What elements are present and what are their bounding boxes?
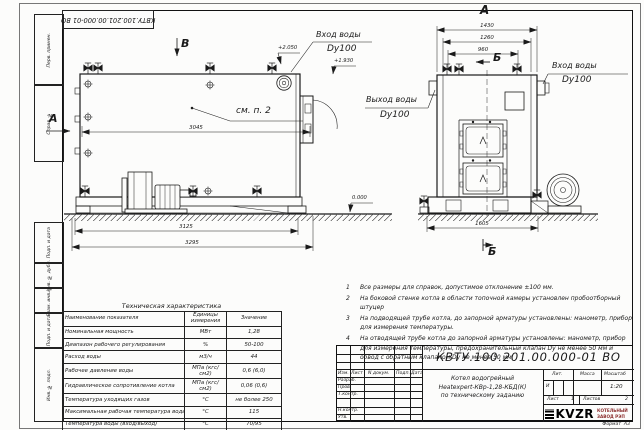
outlet-size: Dy100: [380, 110, 409, 120]
elevation-inlet: +2.050: [278, 45, 297, 51]
table-row: Температура воды (вход/выход)°С70/95: [63, 418, 282, 430]
note-text: На боковой стенке котла в области топочн…: [360, 294, 632, 313]
company-name-line2: ЗАВОД РЭП: [597, 414, 628, 419]
param-value: 115: [227, 406, 282, 418]
description-line2: Heatexpert-КВр-1,28-КБД(К): [422, 384, 543, 393]
view-marker-a: А: [49, 112, 58, 125]
tech-table-title: Техническая характеристика: [62, 302, 281, 310]
table-row: Температура уходящих газов°Сне более 250: [63, 394, 282, 406]
tech-col-units: Единицы измерения: [185, 312, 227, 327]
format-value: А3: [624, 422, 630, 427]
param-units: °С: [185, 394, 227, 406]
param-name: Рабочее давление воды: [63, 363, 185, 378]
company-name: КОТЕЛЬНЫЙ ЗАВОД РЭП: [597, 408, 628, 419]
param-value: 1,28: [227, 327, 282, 339]
param-units: МПа (кгс/см2): [185, 378, 227, 393]
view-marker-b: В: [181, 37, 189, 50]
param-name: Температура уходящих газов: [63, 394, 185, 406]
note-text: Все размеры для справок, допустимое откл…: [360, 283, 632, 293]
drawing-sheet: Перв. примен. Справ. № Подп. и дата Инв.…: [0, 0, 644, 430]
role-utv: Утв.: [338, 415, 348, 420]
elevation-nozzle: +1.930: [334, 58, 353, 64]
inlet-size-front: Dy100: [562, 75, 591, 85]
burner-door: [300, 96, 337, 143]
inlet-size-side: Dy100: [327, 44, 356, 54]
param-units: °С: [185, 406, 227, 418]
ground-hatch-front: [418, 214, 598, 221]
dim-960: 960: [478, 47, 488, 53]
table-row: Гидравлическое сопротивление котлаМПа (к…: [63, 378, 282, 393]
kvzr-logo-icon: [545, 409, 554, 419]
title-block: Изм. Лист N докум. Подп. Дата Разраб. Пр…: [336, 345, 633, 421]
table-row: Рабочее давление водыМПа (кгс/см2)0,6 (6…: [63, 363, 282, 378]
description-line1: Котел водогрейный: [422, 375, 543, 384]
param-value: 70/95: [227, 418, 282, 430]
param-units: МПа (кгс/см2): [185, 363, 227, 378]
lit-value: И: [546, 384, 549, 389]
section-label-top: Б: [493, 51, 501, 64]
ground-hatch-side: [64, 214, 392, 221]
tech-col-value: Значение: [227, 312, 282, 327]
doc-number: КВТУ.100.201.00.000-01 ВО: [423, 350, 634, 364]
scale-value: 1:20: [610, 384, 623, 390]
sheet-value: 1: [571, 397, 574, 402]
param-value: не более 250: [227, 394, 282, 406]
param-units: м3/ч: [185, 351, 227, 363]
note-number: 3: [340, 314, 360, 333]
note-number: 1: [340, 283, 360, 293]
company-logo: KVZR КОТЕЛЬНЫЙ ЗАВОД РЭП: [545, 406, 633, 421]
param-value: 50-100: [227, 339, 282, 351]
param-name: Номинальная мощность: [63, 327, 185, 339]
tech-col-name: Наименование показателя: [63, 312, 185, 327]
section-label-bottom: Б: [488, 245, 496, 258]
role-nkontr: Н.контр.: [338, 408, 359, 413]
scale-label: Масштаб: [604, 372, 626, 377]
tech-table-header-row: Наименование показателя Единицы измерени…: [63, 312, 282, 327]
rev-header-list: Лист: [351, 371, 363, 376]
role-razrab: Разраб.: [338, 378, 356, 383]
dim-1430: 1430: [480, 23, 494, 29]
mass-label: Масса: [580, 372, 595, 377]
param-name: Диапазон рабочего регулирования: [63, 339, 185, 351]
front-view-label: А: [480, 3, 489, 17]
description-line3: по техническому заданию: [422, 392, 543, 401]
sheets-value: 2: [625, 397, 628, 402]
param-name: Температура воды (вход/выход): [63, 418, 185, 430]
format-label: Формат А3: [570, 422, 630, 427]
table-row: Номинальная мощностьМВт1,28: [63, 327, 282, 339]
table-row: Расход водым3/ч44: [63, 351, 282, 363]
note-item: 1 Все размеры для справок, допустимое от…: [340, 283, 632, 293]
format-word: Формат: [602, 422, 621, 427]
param-units: °С: [185, 418, 227, 430]
note-item: 2 На боковой стенке котла в области топо…: [340, 294, 632, 313]
rev-header-ndokum: N докум.: [368, 371, 389, 376]
sheets-label: Листов: [583, 397, 600, 402]
tech-table: Наименование показателя Единицы измерени…: [62, 311, 282, 430]
inlet-label-side: Вход воды: [316, 30, 361, 39]
fan: [547, 174, 581, 213]
outlet-label: Выход воды: [366, 95, 417, 104]
rev-header-izm: Изм.: [338, 371, 349, 376]
dim-3295: 3295: [185, 240, 199, 246]
elevation-zero: 0.000: [352, 195, 367, 201]
see-note-callout: см. п. 2: [236, 106, 271, 116]
param-units: МВт: [185, 327, 227, 339]
param-name: Расход воды: [63, 351, 185, 363]
note-text: На подводящей трубе котла, до запорной а…: [360, 314, 632, 333]
inlet-label-front: Вход воды: [552, 61, 597, 70]
dim-1260: 1260: [480, 35, 494, 41]
role-tkontr: Т.контр.: [338, 392, 358, 397]
lit-label: Лит.: [552, 372, 563, 377]
company-name-line1: КОТЕЛЬНЫЙ: [597, 408, 628, 413]
note-number: 2: [340, 294, 360, 313]
kvzr-logo-text: KVZR: [556, 407, 595, 421]
product-description: Котел водогрейный Heatexpert-КВр-1,28-КБ…: [422, 375, 543, 401]
sheet-label: Лист: [547, 397, 559, 402]
param-name: Максимальная рабочая температура воды: [63, 406, 185, 418]
dim-3045: 3045: [189, 125, 203, 131]
dim-3125: 3125: [179, 224, 193, 230]
skid: [76, 197, 306, 213]
param-units: %: [185, 339, 227, 351]
param-value: 0,06 (0,6): [227, 378, 282, 393]
param-name: Гидравлическое сопротивление котла: [63, 378, 185, 393]
table-row: Максимальная рабочая температура воды°С1…: [63, 406, 282, 418]
rev-header-podp: Подп.: [396, 371, 410, 376]
param-value: 44: [227, 351, 282, 363]
table-row: Диапазон рабочего регулирования%50-100: [63, 339, 282, 351]
dim-1605: 1605: [475, 221, 489, 227]
param-value: 0,6 (6,0): [227, 363, 282, 378]
role-prov: Пров.: [338, 385, 351, 390]
note-item: 3 На подводящей трубе котла, до запорной…: [340, 314, 632, 333]
